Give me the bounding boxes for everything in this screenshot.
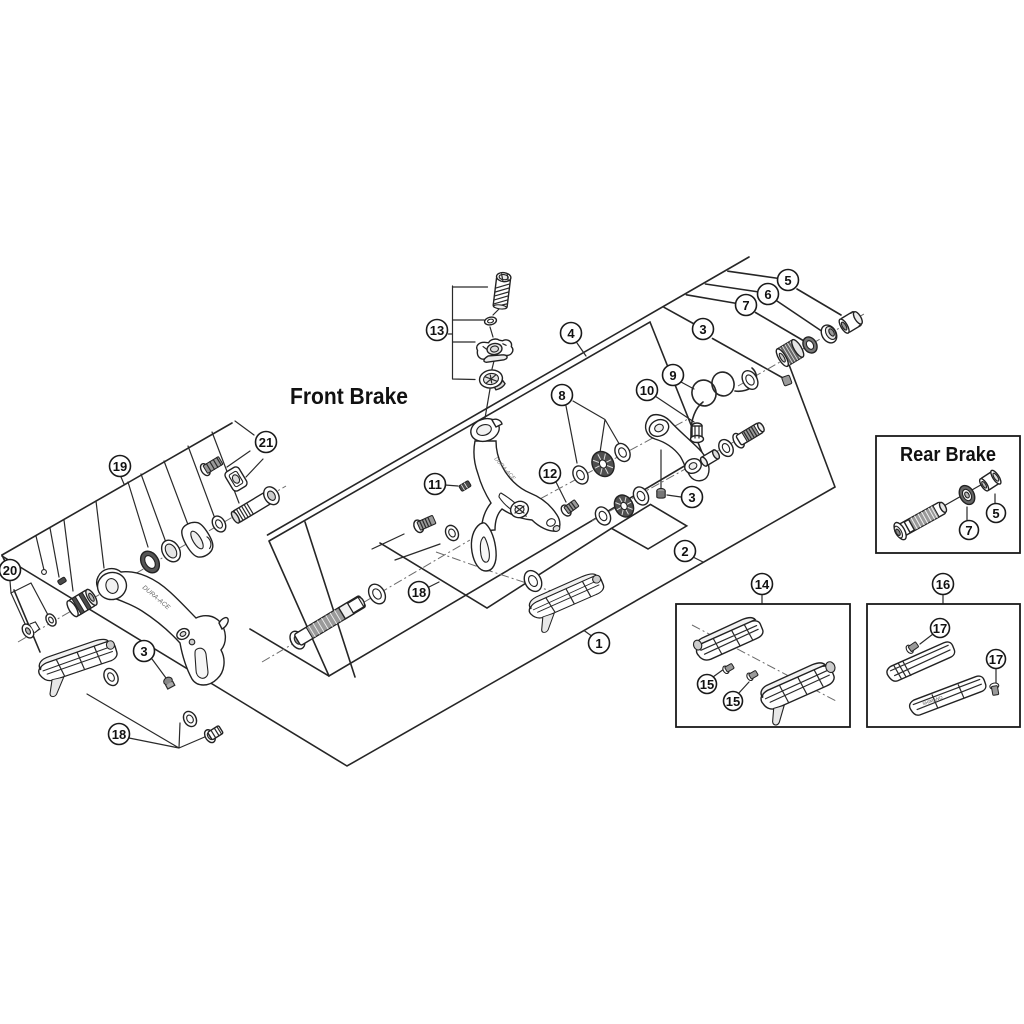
svg-text:9: 9: [669, 368, 676, 383]
svg-text:4: 4: [567, 326, 575, 341]
svg-text:3: 3: [699, 322, 706, 337]
svg-text:15: 15: [700, 677, 714, 692]
svg-text:13: 13: [430, 323, 444, 338]
svg-text:Rear Brake: Rear Brake: [900, 444, 996, 466]
svg-text:3: 3: [140, 644, 147, 659]
svg-text:7: 7: [742, 298, 749, 313]
svg-text:17: 17: [933, 621, 947, 636]
svg-text:18: 18: [112, 727, 126, 742]
svg-text:12: 12: [543, 466, 557, 481]
svg-text:2: 2: [681, 544, 688, 559]
svg-text:15: 15: [726, 694, 740, 709]
svg-text:8: 8: [558, 388, 565, 403]
svg-text:20: 20: [3, 563, 17, 578]
svg-text:10: 10: [640, 383, 654, 398]
svg-text:5: 5: [992, 506, 999, 521]
svg-text:18: 18: [412, 585, 426, 600]
svg-text:5: 5: [784, 273, 791, 288]
svg-text:14: 14: [755, 577, 770, 592]
svg-text:17: 17: [989, 652, 1003, 667]
svg-text:1: 1: [595, 636, 602, 651]
svg-text:Front Brake: Front Brake: [290, 383, 408, 409]
svg-text:19: 19: [113, 459, 127, 474]
svg-text:7: 7: [965, 523, 972, 538]
svg-text:21: 21: [259, 435, 273, 450]
svg-text:6: 6: [764, 287, 771, 302]
svg-text:3: 3: [688, 490, 695, 505]
svg-text:11: 11: [428, 477, 442, 492]
svg-text:16: 16: [936, 577, 950, 592]
